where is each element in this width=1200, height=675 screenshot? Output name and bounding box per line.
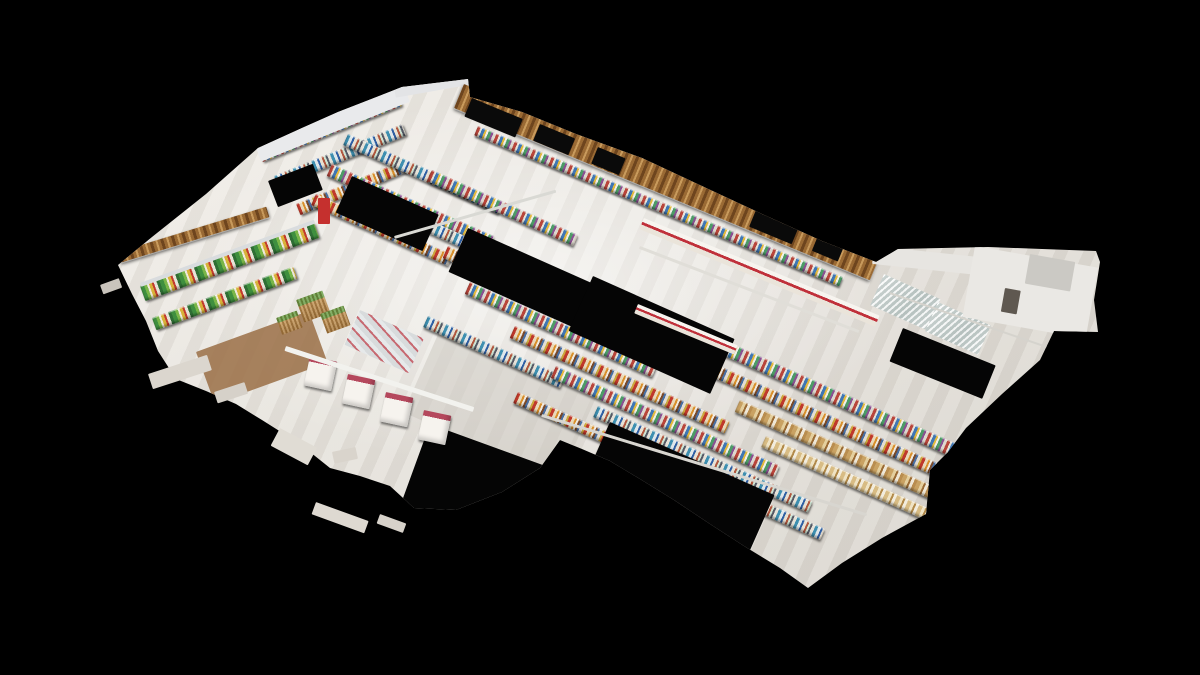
dollhouse-viewport[interactable] xyxy=(0,0,1200,675)
floor-fragment xyxy=(100,278,122,294)
back-white-wall xyxy=(254,83,410,161)
floor-fragment xyxy=(377,514,407,533)
meat-table xyxy=(345,310,424,373)
checkout-counter xyxy=(342,374,376,409)
freezer-void xyxy=(336,176,439,251)
store-model xyxy=(0,0,1200,675)
red-display-sign xyxy=(318,198,330,224)
floor-fragment xyxy=(312,502,369,533)
checkout-counter xyxy=(380,392,414,427)
